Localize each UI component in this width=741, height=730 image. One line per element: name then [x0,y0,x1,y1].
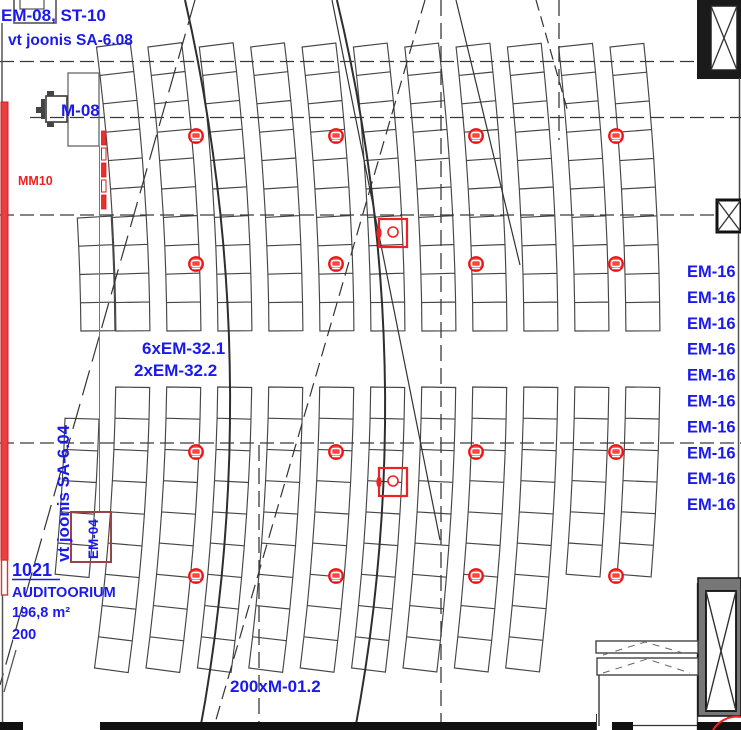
svg-text:M-08: M-08 [61,101,100,120]
svg-text:EM-04: EM-04 [86,519,101,559]
svg-text:6xEM-32.1: 6xEM-32.1 [142,339,225,358]
svg-text:EM-16: EM-16 [687,418,736,436]
svg-text:EM-16: EM-16 [687,315,736,333]
svg-text:200: 200 [12,627,36,643]
svg-text:200xM-01.2: 200xM-01.2 [230,677,321,696]
svg-text:EM-16: EM-16 [687,263,736,281]
svg-text:EM-16: EM-16 [687,367,736,385]
svg-text:MM10: MM10 [18,174,53,188]
svg-text:EM-16: EM-16 [687,341,736,359]
svg-text:EM-08, ST-10: EM-08, ST-10 [1,6,106,25]
svg-text:EM-16: EM-16 [687,393,736,411]
svg-text:EM-16: EM-16 [687,444,736,462]
svg-text:EM-16: EM-16 [687,470,736,488]
svg-text:EM-16: EM-16 [687,289,736,307]
svg-text:EM-16: EM-16 [687,496,736,514]
svg-text:vt joonis SA-6.08: vt joonis SA-6.08 [8,32,133,49]
svg-text:196,8 m²: 196,8 m² [12,605,70,621]
svg-text:vt joonis SA-6.04: vt joonis SA-6.04 [54,424,73,562]
svg-text:1021: 1021 [12,560,52,580]
svg-text:AUDITOORIUM: AUDITOORIUM [12,585,116,601]
svg-text:2xEM-32.2: 2xEM-32.2 [134,361,217,380]
